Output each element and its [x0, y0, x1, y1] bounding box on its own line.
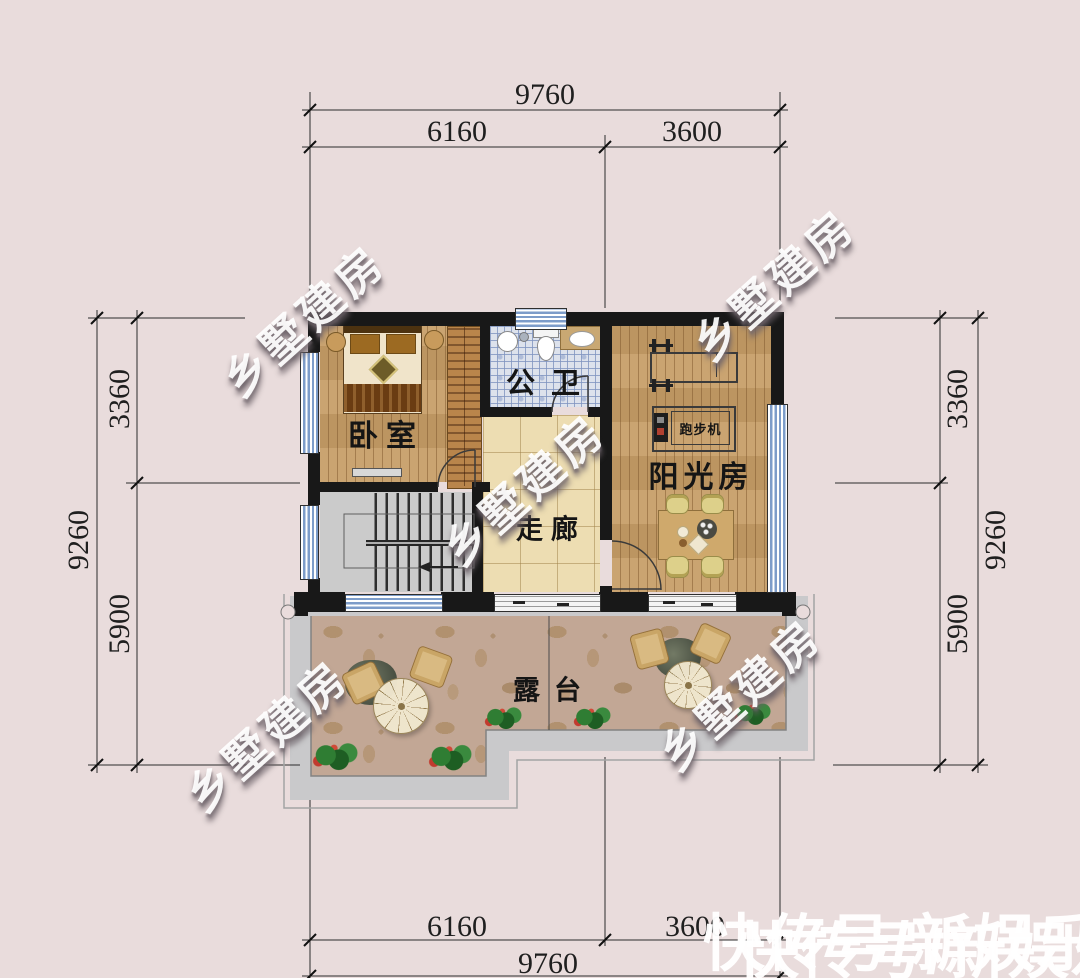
dim-right-lower: 5900: [941, 594, 975, 654]
dim-left-upper: 3360: [103, 369, 137, 429]
dim-right-overall: 9260: [979, 510, 1013, 570]
room-label-terrace: 露台: [513, 669, 595, 708]
dim-left-lower: 5900: [103, 594, 137, 654]
dim-right-upper: 3360: [941, 369, 975, 429]
footer-watermark: 快传号/新娱乐: [737, 901, 1080, 978]
dim-top-left: 6160: [427, 115, 487, 149]
dim-bottom-overall: 9760: [518, 947, 578, 978]
dim-bottom-left: 6160: [427, 910, 487, 944]
dim-top-right: 3600: [662, 115, 722, 149]
dim-top-overall: 9760: [515, 78, 575, 112]
dim-left-overall: 9260: [62, 510, 96, 570]
room-label-bedroom: 卧室: [348, 411, 424, 455]
floor-plan-page: 跑步机: [0, 0, 1080, 978]
room-label-sunroom: 阳光房: [649, 452, 754, 496]
room-label-bathroom: 公卫: [506, 360, 596, 402]
